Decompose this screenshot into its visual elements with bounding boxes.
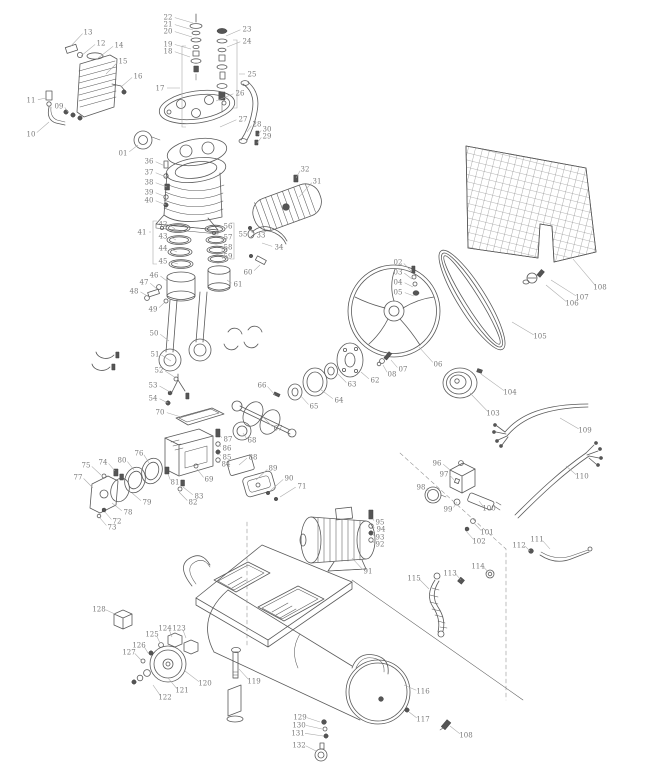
leader-line-104 [481, 374, 504, 391]
part-label-29: 29 [263, 132, 272, 140]
part-label-61: 61 [234, 280, 243, 288]
part-label-97: 97 [440, 470, 449, 478]
intake-fittings [46, 91, 82, 125]
part-label-17: 17 [156, 84, 165, 92]
part-label-86: 86 [223, 444, 232, 452]
leader-line-131 [305, 733, 323, 736]
crankshaft [232, 392, 296, 438]
part-label-120: 120 [198, 679, 211, 687]
part-label-110: 110 [575, 472, 588, 480]
leader-line-90 [270, 479, 283, 491]
leader-line-23 [226, 30, 240, 36]
leader-line-82 [179, 492, 187, 501]
part-label-111: 111 [530, 535, 543, 543]
part-label-77: 77 [74, 473, 83, 481]
part-label-123: 123 [172, 624, 185, 632]
motor [300, 507, 375, 571]
part-label-10: 10 [27, 130, 36, 138]
part-label-44: 44 [159, 244, 168, 252]
part-label-33: 33 [257, 231, 266, 239]
part-label-84: 84 [222, 460, 231, 468]
bracket-17 [182, 46, 186, 127]
part-label-119: 119 [247, 677, 260, 685]
leader-line-03 [404, 273, 412, 279]
part-label-36: 36 [145, 157, 154, 165]
connecting-rods [92, 292, 262, 371]
leader-line-01 [129, 145, 138, 152]
part-label-39: 39 [145, 188, 154, 196]
part-label-105: 105 [533, 332, 546, 340]
part-label-100: 100 [482, 504, 495, 512]
part-label-63: 63 [348, 380, 357, 388]
exploded-parts-diagram: 0102030405060708091011121314151617181920… [0, 0, 646, 768]
bracket-25 [233, 40, 237, 108]
leader-line-16 [121, 77, 132, 87]
leader-line-19 [175, 45, 191, 50]
flywheel-hub-parts [288, 343, 363, 400]
part-label-05: 05 [394, 288, 403, 296]
part-label-48: 48 [130, 287, 139, 295]
part-label-18: 18 [164, 47, 173, 55]
part-label-125: 125 [145, 630, 158, 638]
part-label-128: 128 [92, 605, 105, 613]
part-label-96: 96 [433, 459, 442, 467]
leader-line-60 [254, 265, 260, 271]
leader-line-39 [156, 193, 166, 197]
part-label-92: 92 [376, 540, 385, 548]
part-label-51: 51 [151, 350, 160, 358]
part-label-30: 30 [263, 125, 272, 133]
part-label-122: 122 [158, 693, 171, 701]
part-label-28: 28 [253, 120, 262, 128]
part-label-60: 60 [244, 268, 253, 276]
part-label-08: 08 [388, 370, 397, 378]
part-label-67: 67 [274, 424, 283, 432]
part-label-55: 55 [239, 230, 248, 238]
part-labels-layer: 0102030405060708091011121314151617181920… [27, 13, 607, 749]
part-label-07: 07 [399, 365, 408, 373]
bracket-41 [153, 221, 157, 264]
part-label-06: 06 [434, 360, 443, 368]
leader-line-69 [197, 469, 204, 477]
part-label-62: 62 [371, 376, 380, 384]
part-label-117: 117 [416, 715, 429, 723]
leader-line-40 [156, 201, 166, 205]
leader-line-109 [560, 418, 579, 429]
part-label-91: 91 [364, 567, 373, 575]
leader-line-61 [227, 280, 231, 283]
part-label-31: 31 [313, 177, 322, 185]
cover-bolt-column [216, 429, 220, 462]
part-label-76: 76 [135, 449, 144, 457]
leader-lines-layer [37, 18, 595, 751]
part-label-65: 65 [310, 402, 319, 410]
part-label-54: 54 [149, 394, 158, 402]
part-label-108: 108 [593, 283, 606, 291]
leader-line-05 [405, 293, 414, 296]
part-label-20: 20 [164, 27, 173, 35]
part-label-04: 04 [394, 278, 403, 286]
part-label-107: 107 [575, 293, 588, 301]
part-label-81: 81 [171, 478, 180, 486]
part-label-11: 11 [27, 96, 36, 104]
pressure-switch [450, 461, 475, 493]
leader-line-53 [160, 386, 171, 392]
leader-line-66 [268, 387, 276, 396]
rod-fasteners [166, 374, 189, 405]
leader-line-63 [338, 374, 346, 383]
leader-line-07 [391, 360, 397, 368]
leader-line-132 [306, 746, 316, 751]
braided-hose [429, 573, 447, 637]
leader-line-80 [127, 462, 134, 470]
part-label-115: 115 [407, 574, 420, 582]
part-label-41: 41 [138, 228, 147, 236]
leader-line-96 [443, 464, 450, 470]
leader-line-74 [109, 464, 115, 472]
part-label-121: 121 [175, 686, 188, 694]
leader-line-88 [239, 458, 247, 465]
part-label-109: 109 [578, 426, 591, 434]
part-label-130: 130 [292, 721, 305, 729]
part-label-24: 24 [243, 37, 252, 45]
part-label-25: 25 [248, 70, 257, 78]
bearing-grommet [134, 131, 160, 149]
leader-line-93 [373, 533, 374, 536]
part-label-116: 116 [416, 687, 430, 695]
leader-line-95 [373, 518, 374, 521]
part-label-90: 90 [285, 474, 294, 482]
leader-line-72 [105, 512, 111, 520]
leader-line-73 [100, 518, 106, 526]
diagram-canvas: 0102030405060708091011121314151617181920… [0, 0, 646, 768]
part-label-57: 57 [224, 233, 233, 241]
part-label-43: 43 [159, 232, 168, 240]
guard-screw [523, 269, 544, 284]
part-label-26: 26 [236, 89, 245, 97]
part-label-87: 87 [224, 435, 233, 443]
part-label-34: 34 [275, 243, 284, 251]
part-label-66: 66 [258, 381, 267, 389]
part-label-71: 71 [298, 482, 307, 490]
leader-line-47 [150, 283, 157, 289]
part-label-94: 94 [377, 525, 386, 533]
part-label-21: 21 [164, 20, 173, 28]
part-label-101: 101 [480, 528, 493, 536]
part-label-131: 131 [291, 729, 304, 737]
part-label-14: 14 [115, 41, 124, 49]
part-label-01: 01 [119, 149, 128, 157]
leader-line-129 [307, 718, 320, 722]
part-label-45: 45 [159, 257, 168, 265]
leader-line-87 [220, 435, 222, 438]
leader-line-22 [175, 18, 193, 23]
leader-line-08 [383, 365, 387, 372]
part-label-78: 78 [124, 508, 133, 516]
side-plate-set [227, 455, 278, 501]
part-label-47: 47 [140, 278, 149, 286]
part-label-68: 68 [248, 436, 257, 444]
base-gasket [176, 408, 224, 425]
part-label-124: 124 [158, 624, 172, 632]
valve-stack-right [217, 28, 227, 112]
leader-line-10 [37, 122, 49, 133]
part-label-114: 114 [471, 562, 485, 570]
part-label-40: 40 [145, 196, 154, 204]
part-label-32: 32 [301, 165, 310, 173]
part-label-79: 79 [143, 498, 152, 506]
leader-line-105 [512, 322, 534, 335]
leader-line-70 [167, 413, 181, 417]
leader-line-52 [165, 371, 176, 378]
part-label-108: 108 [459, 731, 472, 739]
leader-line-11 [38, 98, 46, 100]
discharge-elbow [248, 226, 287, 244]
part-label-103: 103 [486, 409, 499, 417]
part-label-38: 38 [145, 178, 154, 186]
leader-line-127 [135, 653, 141, 660]
leader-line-75 [92, 466, 101, 475]
belt-guard [466, 146, 596, 262]
leader-line-51 [161, 355, 171, 361]
leader-line-71 [280, 487, 296, 497]
part-label-73: 73 [108, 523, 117, 531]
part-label-83: 83 [195, 492, 204, 500]
leader-line-34 [262, 243, 272, 246]
part-label-15: 15 [119, 57, 128, 65]
drain-valve-parts [315, 720, 328, 761]
leader-line-128 [106, 610, 117, 615]
leader-line-83 [183, 487, 193, 495]
part-label-37: 37 [145, 168, 154, 176]
part-label-46: 46 [150, 271, 159, 279]
part-label-95: 95 [376, 518, 385, 526]
part-label-113: 113 [443, 569, 456, 577]
leader-line-89 [256, 469, 267, 480]
part-label-85: 85 [223, 453, 232, 461]
part-label-132: 132 [292, 741, 305, 749]
part-label-104: 104 [503, 388, 517, 396]
part-label-70: 70 [156, 408, 165, 416]
part-label-93: 93 [376, 533, 385, 541]
leader-line-65 [300, 395, 309, 405]
part-label-49: 49 [149, 305, 158, 313]
leader-line-115 [420, 580, 429, 590]
leader-line-18 [175, 52, 190, 57]
leader-line-130 [306, 725, 322, 729]
piston-assembly-1 [145, 224, 195, 303]
part-label-03: 03 [394, 268, 403, 276]
part-label-12: 12 [97, 39, 106, 47]
leader-line-06 [419, 347, 433, 362]
part-label-74: 74 [99, 458, 108, 466]
crankcase [165, 429, 213, 476]
part-label-64: 64 [335, 396, 344, 404]
part-label-69: 69 [205, 475, 214, 483]
part-label-27: 27 [239, 115, 248, 123]
part-label-75: 75 [82, 461, 91, 469]
part-label-127: 127 [122, 648, 135, 656]
leader-line-04 [405, 283, 413, 287]
leader-line-20 [175, 32, 192, 37]
bent-pipe [529, 547, 592, 561]
power-cable-lower [515, 441, 603, 518]
part-label-13: 13 [84, 28, 93, 36]
leader-line-79 [132, 493, 141, 501]
leader-line-108 [573, 259, 595, 285]
finned-cooler [249, 180, 326, 235]
part-label-56: 56 [224, 222, 233, 230]
part-label-09: 09 [55, 102, 64, 110]
air-filter [65, 44, 126, 117]
leader-line-77 [84, 479, 93, 489]
part-label-129: 129 [293, 713, 306, 721]
part-label-89: 89 [269, 464, 278, 472]
leader-line-78 [112, 503, 122, 511]
pressure-gauge [425, 487, 446, 503]
part-label-02: 02 [394, 258, 403, 266]
part-label-19: 19 [164, 40, 173, 48]
leader-line-49 [159, 302, 165, 308]
part-label-53: 53 [149, 381, 158, 389]
leader-line-62 [361, 372, 369, 379]
part-label-16: 16 [134, 72, 143, 80]
motor-pulley [443, 368, 483, 398]
part-label-52: 52 [155, 366, 164, 374]
leader-line-112 [525, 546, 530, 551]
leader-line-107 [551, 280, 576, 296]
part-label-23: 23 [243, 25, 252, 33]
leader-line-27 [220, 120, 236, 127]
leader-line-103 [470, 393, 488, 411]
part-label-112: 112 [512, 541, 525, 549]
part-label-80: 80 [118, 456, 127, 464]
drive-belt [429, 243, 514, 356]
part-label-98: 98 [417, 483, 426, 491]
leader-line-24 [227, 42, 240, 47]
part-label-88: 88 [249, 453, 258, 461]
valve-stack-left [190, 14, 202, 80]
part-label-50: 50 [150, 329, 159, 337]
part-label-59: 59 [224, 252, 233, 260]
leader-line-46 [160, 276, 167, 281]
part-label-102: 102 [472, 537, 485, 545]
part-label-42: 42 [159, 220, 168, 228]
part-label-58: 58 [224, 243, 233, 251]
part-label-22: 22 [164, 13, 173, 21]
leader-line-120 [185, 671, 199, 682]
part-label-99: 99 [444, 505, 453, 513]
